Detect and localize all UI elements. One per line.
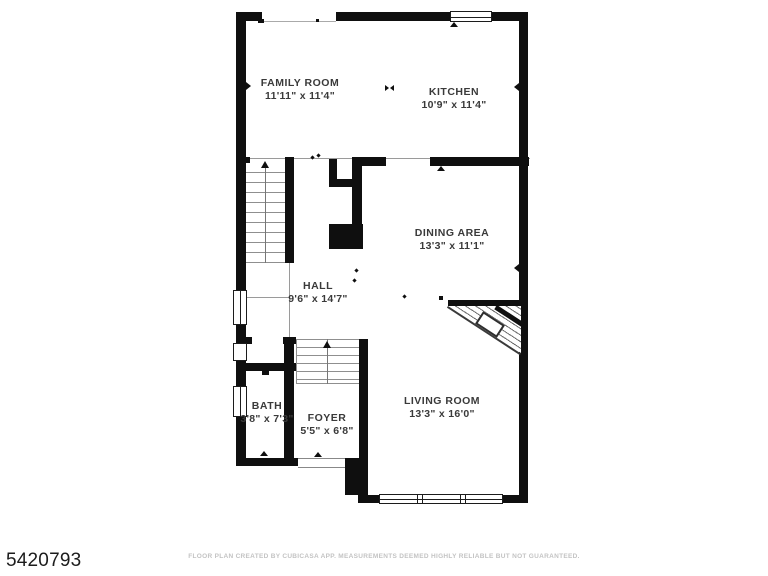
- room-label-living-room: LIVING ROOM 13'3" x 16'0": [404, 395, 480, 421]
- door-marker: [437, 166, 445, 171]
- boundary-line-landing-h: [246, 297, 290, 298]
- vestibule-window: [233, 343, 247, 361]
- living-window-divider-2: [422, 495, 423, 503]
- hall-window-mullion: [240, 291, 241, 324]
- door-tick-bath: [262, 371, 269, 375]
- door-marker: [316, 153, 320, 157]
- room-dimensions: 11'11" x 11'4": [261, 90, 339, 103]
- wall-top-b: [336, 12, 450, 21]
- kitchen-window: [450, 11, 492, 22]
- wall-right: [519, 12, 528, 503]
- room-name: FOYER: [300, 412, 353, 425]
- wall-dining-living: [448, 300, 528, 306]
- wall-foyer-right: [359, 339, 368, 495]
- door-marker: [402, 294, 406, 298]
- room-label-kitchen: KITCHEN 10'9" x 11'4": [422, 86, 487, 112]
- room-label-hall: HALL 9'6" x 14'7": [288, 280, 347, 306]
- room-name: LIVING ROOM: [404, 395, 480, 408]
- door-marker: [260, 451, 268, 456]
- door-marker: [514, 83, 519, 91]
- listing-id: 5420793: [6, 550, 81, 572]
- kitchen-window-mullion: [451, 17, 491, 18]
- room-label-dining-area: DINING AREA 13'3" x 11'1": [415, 227, 490, 253]
- hall-window: [233, 290, 247, 325]
- door-marker: [450, 22, 458, 27]
- living-window-mullion: [380, 499, 502, 500]
- room-dimensions: 13'3" x 16'0": [404, 408, 480, 421]
- appliance-marker: [390, 85, 394, 91]
- hall-staircase-up-arrow: [261, 161, 269, 168]
- wall-closet-vertical: [352, 157, 362, 227]
- room-name: FAMILY ROOM: [261, 77, 339, 90]
- living-window-divider-4: [465, 495, 466, 503]
- door-marker: [352, 278, 356, 282]
- door-marker: [514, 264, 519, 272]
- room-dimensions: 10'9" x 11'4": [422, 99, 487, 112]
- wall-bath-bottom: [236, 458, 298, 466]
- wall-vestibule-top-b: [283, 337, 296, 344]
- room-dimensions: 3'8" x 7'3": [240, 413, 293, 426]
- door-marker: [316, 19, 319, 22]
- appliance-marker: [385, 85, 389, 91]
- foyer-staircase-up-arrow: [323, 341, 331, 348]
- room-dimensions: 5'5" x 6'8": [300, 425, 353, 438]
- room-dimensions: 13'3" x 11'1": [415, 240, 490, 253]
- room-label-foyer: FOYER 5'5" x 6'8": [300, 412, 353, 438]
- wall-stair-right: [285, 157, 294, 263]
- chimney-block: [329, 224, 363, 249]
- living-window-divider-3: [460, 495, 461, 503]
- living-window-divider-1: [417, 495, 418, 503]
- room-label-family-room: FAMILY ROOM 11'11" x 11'4": [261, 77, 339, 103]
- floor-plan-canvas: FAMILY ROOM 11'11" x 11'4" KITCHEN 10'9"…: [0, 0, 768, 576]
- front-door-opening: [298, 458, 345, 468]
- room-label-bath: BATH 3'8" x 7'3": [240, 400, 293, 426]
- room-name: BATH: [240, 400, 293, 413]
- room-name: DINING AREA: [415, 227, 490, 240]
- room-dimensions: 9'6" x 14'7": [288, 293, 347, 306]
- room-name: HALL: [288, 280, 347, 293]
- door-marker: [439, 296, 443, 300]
- patio-door-opening: [262, 12, 336, 22]
- wall-dining-top-b: [430, 157, 529, 166]
- door-marker: [354, 268, 358, 272]
- room-name: KITCHEN: [422, 86, 487, 99]
- door-marker: [314, 452, 322, 457]
- door-marker: [258, 19, 264, 23]
- door-marker: [246, 82, 251, 90]
- wall-closet-connector: [329, 179, 362, 187]
- hall-staircase-centerline: [265, 163, 266, 263]
- living-room-window: [379, 494, 503, 504]
- disclaimer-text: FLOOR PLAN CREATED BY CUBICASA APP. MEAS…: [188, 553, 580, 560]
